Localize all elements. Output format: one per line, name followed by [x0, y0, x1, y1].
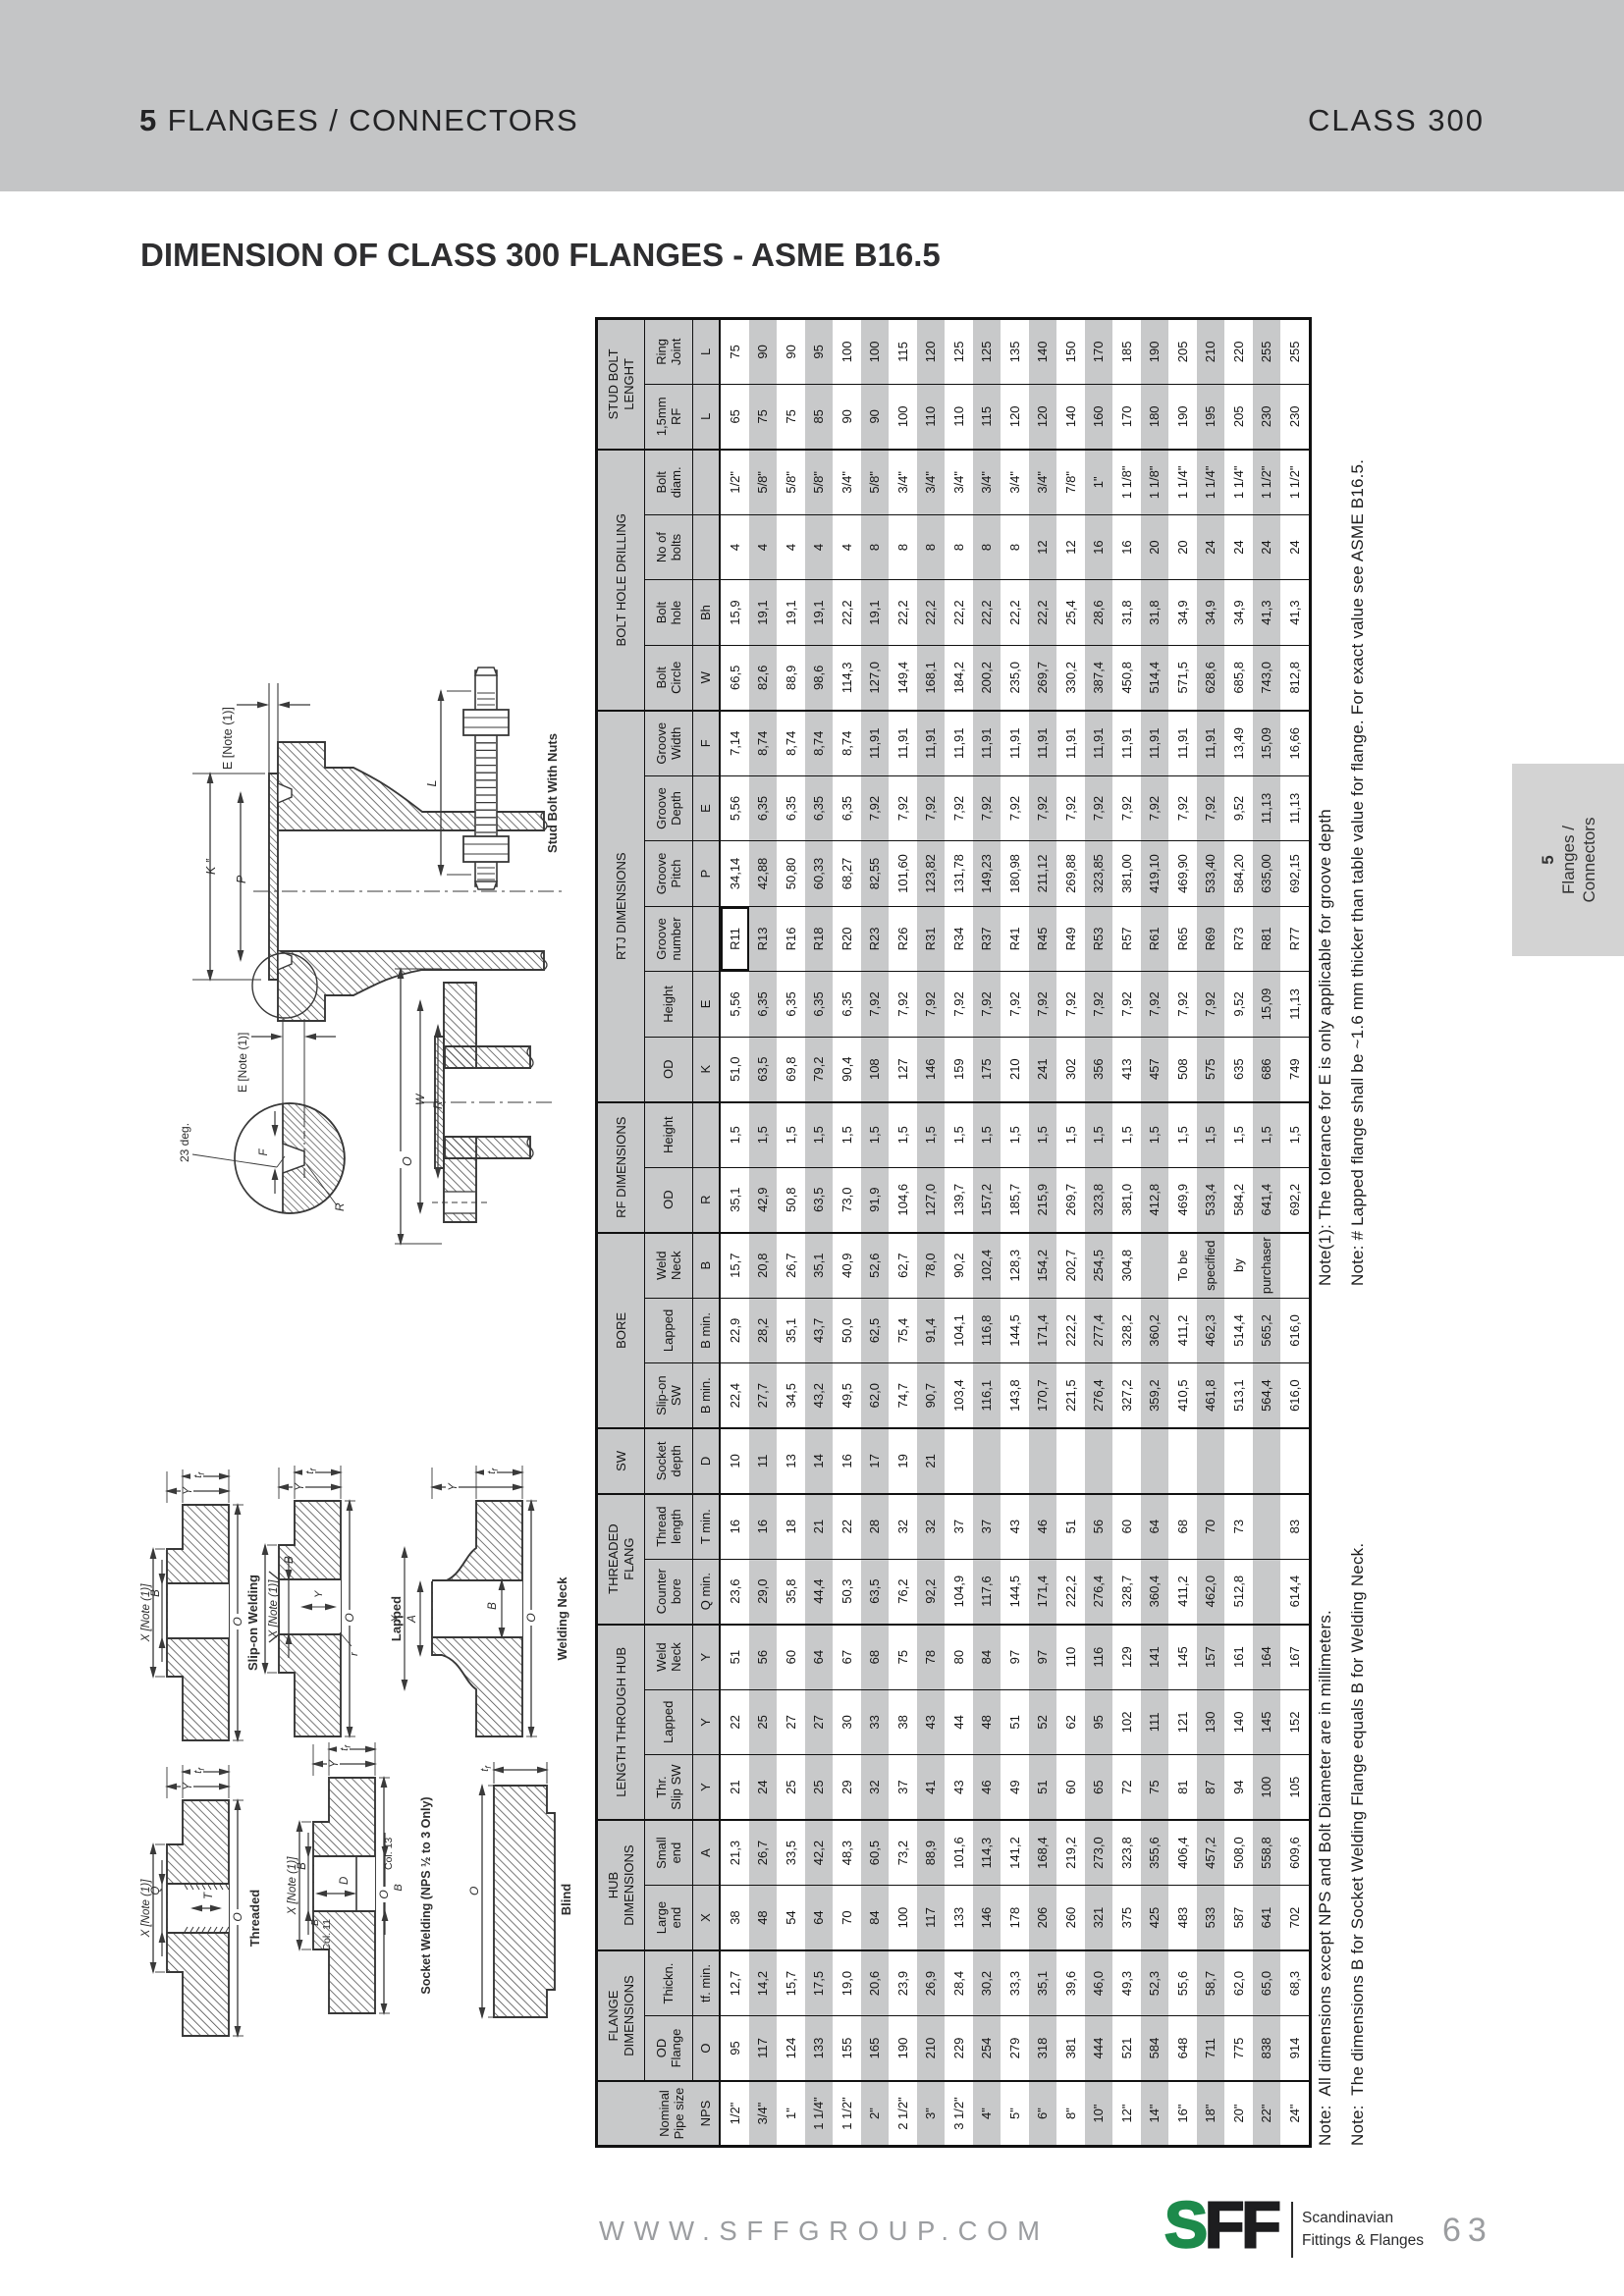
svg-text:O: O [377, 1890, 391, 1898]
svg-text:W: W [413, 1093, 427, 1105]
svg-text:B: B [393, 1884, 405, 1891]
svg-text:Blind: Blind [559, 1884, 573, 1916]
svg-text:Y: Y [313, 1590, 325, 1598]
svg-text:Col. 11: Col. 11 [321, 1919, 333, 1951]
svg-text:K ‟: K ‟ [204, 858, 218, 875]
svg-text:Col. 13: Col. 13 [383, 1838, 395, 1870]
svg-text:Welding Neck: Welding Neck [555, 1576, 569, 1661]
svg-text:E [Note (1)]: E [Note (1)] [236, 1033, 249, 1093]
svg-text:Q: Q [150, 1886, 162, 1895]
svg-text:Threaded: Threaded [247, 1890, 262, 1948]
svg-text:R: R [333, 1202, 347, 1211]
svg-text:Y: Y [183, 1486, 194, 1495]
svg-text:O: O [343, 1613, 356, 1622]
svg-text:Y: Y [295, 1482, 306, 1491]
svg-text:B: B [309, 1919, 321, 1926]
svg-text:Stud Bolt With Nuts: Stud Bolt With Nuts [545, 733, 560, 853]
svg-text:B: B [297, 1862, 308, 1870]
svg-text:Y: Y [448, 1482, 460, 1491]
svg-text:X: X [391, 1614, 403, 1624]
svg-text:A: A [406, 1615, 418, 1624]
svg-text:E [Note (1)]: E [Note (1)] [221, 707, 235, 770]
svg-text:23 deg.: 23 deg. [178, 1123, 191, 1162]
svg-text:R: R [431, 1100, 445, 1109]
svg-text:tf: tf [479, 1765, 493, 1772]
svg-text:T: T [203, 1892, 215, 1899]
svg-text:O: O [524, 1613, 538, 1622]
svg-text:B: B [284, 1556, 296, 1564]
svg-text:Socket Welding (NPS ½ to 3 Onl: Socket Welding (NPS ½ to 3 Only) [419, 1796, 433, 1994]
svg-text:r: r [349, 1651, 360, 1656]
svg-text:O: O [231, 1912, 244, 1921]
svg-text:Y: Y [183, 1782, 194, 1790]
svg-text:F: F [258, 1148, 270, 1156]
svg-text:Y: Y [329, 1759, 341, 1768]
svg-text:O: O [231, 1617, 244, 1626]
svg-text:P: P [235, 875, 248, 883]
svg-text:B: B [150, 1589, 162, 1597]
svg-text:D: D [339, 1877, 351, 1885]
svg-text:L: L [425, 779, 439, 786]
svg-text:Slip-on Welding: Slip-on Welding [245, 1575, 260, 1671]
svg-text:O: O [401, 1156, 414, 1166]
svg-text:O: O [467, 1887, 481, 1896]
svg-text:B: B [487, 1602, 499, 1610]
svg-text:X [Note (1)]: X [Note (1)] [268, 1579, 280, 1639]
